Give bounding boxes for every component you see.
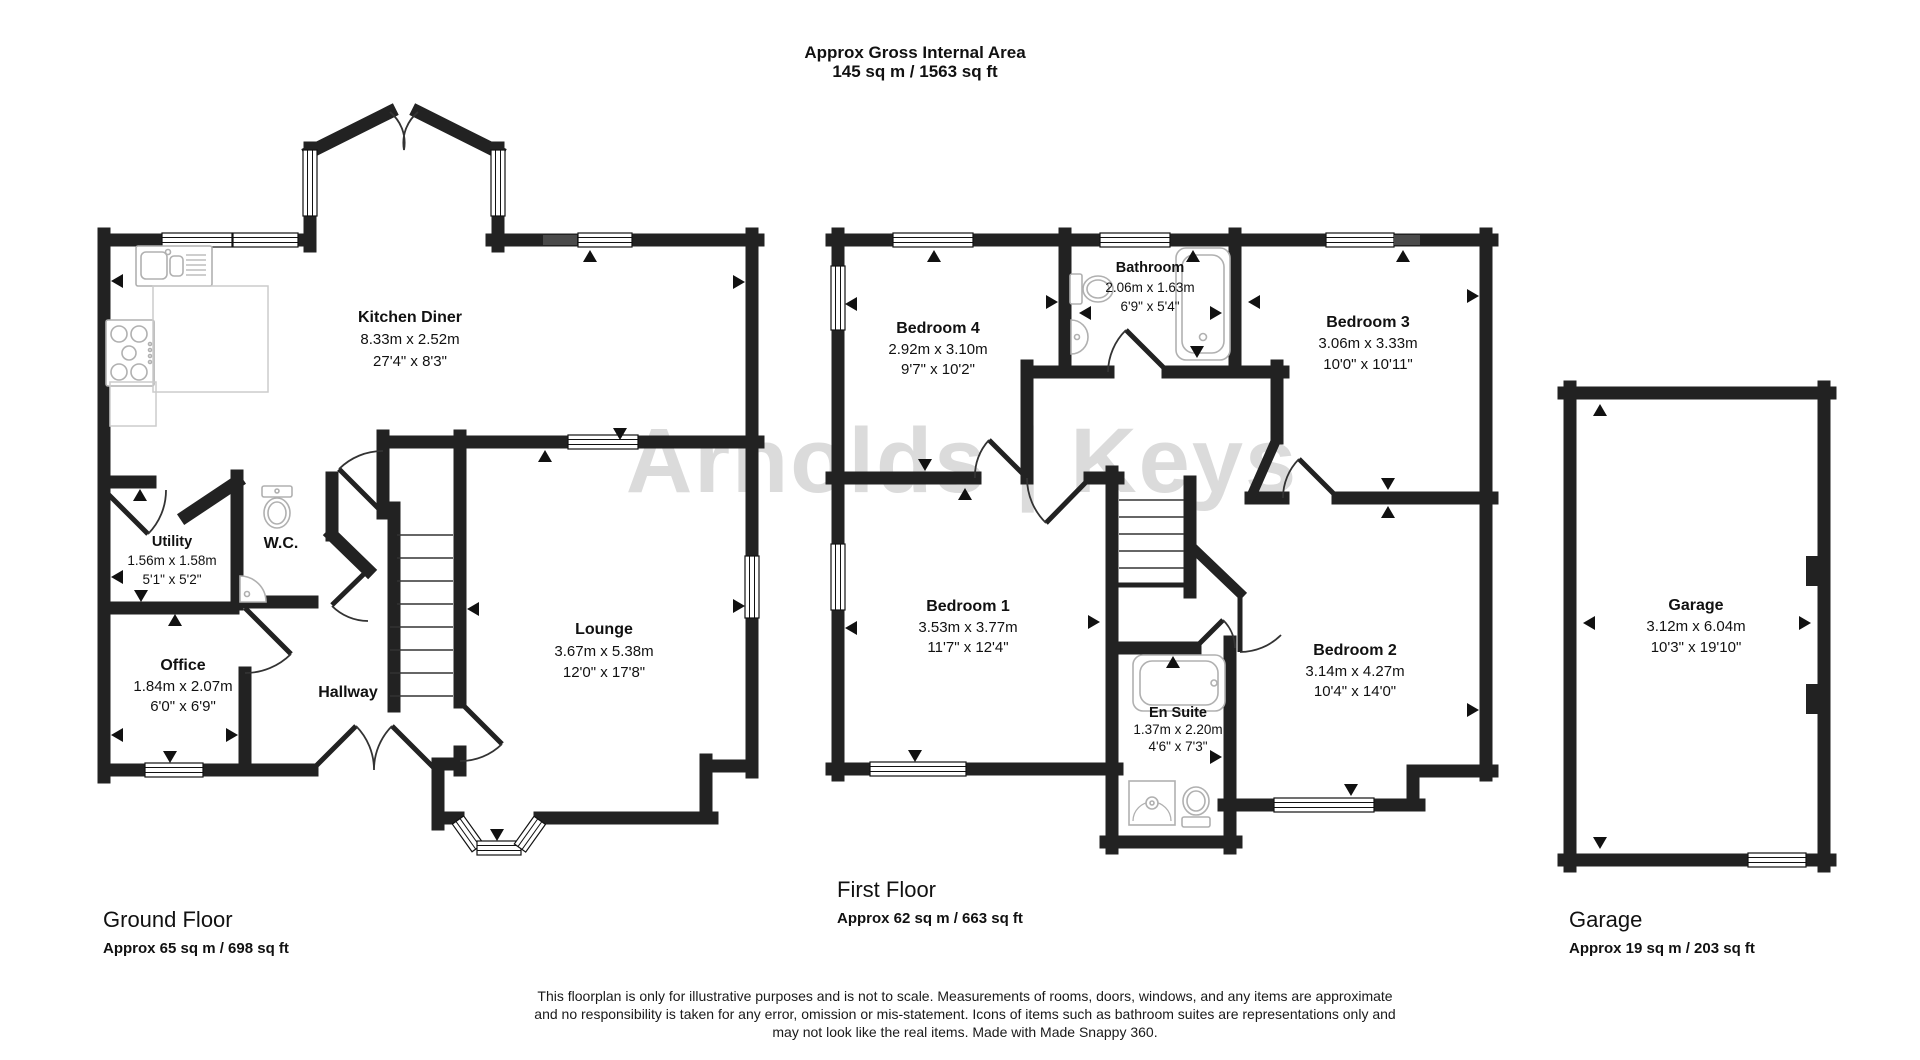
garage-plan: Garage 3.12m x 6.04m 10'3" x 19'10": [1564, 387, 1830, 867]
office-label: Office 1.84m x 2.07m 6'0" x 6'9": [133, 657, 232, 715]
gross-internal-area-header: Approx Gross Internal Area 145 sq m / 15…: [804, 43, 1026, 81]
bedroom-1-metric: 3.53m x 3.77m: [918, 619, 1017, 636]
garage-title: Garage: [1569, 907, 1642, 932]
bedroom-3-label: Bedroom 3 3.06m x 3.33m 10'0" x 10'11": [1318, 314, 1417, 373]
bedroom-3-metric: 3.06m x 3.33m: [1318, 335, 1417, 352]
garage-area: Approx 19 sq m / 203 sq ft: [1569, 940, 1755, 957]
utility-label: Utility 1.56m x 1.58m 5'1" x 5'2": [127, 534, 216, 587]
garage-windows: [1748, 853, 1806, 867]
first-floor-plan: Bedroom 4 2.92m x 3.10m 9'7" x 10'2" Bat…: [831, 233, 1492, 848]
garage-footer: Garage Approx 19 sq m / 203 sq ft: [1569, 907, 1755, 957]
bedroom-4-imperial: 9'7" x 10'2": [901, 361, 975, 378]
ground-floor-footer: Ground Floor Approx 65 sq m / 698 sq ft: [103, 907, 289, 957]
hallway-name: Hallway: [318, 684, 378, 701]
bedroom-4-metric: 2.92m x 3.10m: [888, 341, 987, 358]
bedroom-3-imperial: 10'0" x 10'11": [1323, 356, 1413, 373]
bathroom-metric: 2.06m x 1.63m: [1105, 280, 1194, 295]
lounge-imperial: 12'0" x 17'8": [563, 664, 645, 681]
kitchen-diner-name: Kitchen Diner: [358, 309, 462, 326]
bedroom-2-metric: 3.14m x 4.27m: [1305, 663, 1404, 680]
wc-name: W.C.: [264, 535, 299, 552]
bedroom-3-name: Bedroom 3: [1326, 314, 1410, 331]
office-name: Office: [160, 657, 205, 674]
ground-floor-title: Ground Floor: [103, 907, 233, 932]
en-suite-label: En Suite 1.37m x 2.20m 4'6" x 7'3": [1133, 705, 1222, 754]
lounge-name: Lounge: [575, 621, 633, 638]
disclaimer-line2: and no responsibility is taken for any e…: [534, 1006, 1395, 1022]
ensuite-shower-icon: [1129, 781, 1175, 825]
floorplan-image: Approx Gross Internal Area 145 sq m / 15…: [0, 0, 1920, 1060]
bedroom-1-label: Bedroom 1 3.53m x 3.77m 11'7" x 12'4": [918, 598, 1017, 656]
ensuite-bath-icon: [1133, 655, 1225, 711]
kitchen-diner-metric: 8.33m x 2.52m: [360, 331, 459, 348]
office-imperial: 6'0" x 6'9": [150, 698, 216, 715]
first-floor-title: First Floor: [837, 877, 936, 902]
disclaimer-line1: This floorplan is only for illustrative …: [537, 988, 1392, 1004]
bathroom-name: Bathroom: [1116, 260, 1184, 276]
disclaimer-line3: may not look like the real items. Made w…: [772, 1024, 1157, 1040]
bedroom-4-label: Bedroom 4 2.92m x 3.10m 9'7" x 10'2": [888, 320, 987, 378]
wc-basin-icon: [240, 576, 266, 602]
utility-metric: 1.56m x 1.58m: [127, 553, 216, 568]
garage-name: Garage: [1668, 597, 1723, 614]
header-line2: 145 sq m / 1563 sq ft: [832, 62, 998, 81]
bedroom-4-name: Bedroom 4: [896, 320, 980, 337]
utility-name: Utility: [152, 534, 192, 550]
garage-label: Garage 3.12m x 6.04m 10'3" x 19'10": [1646, 597, 1745, 656]
bedroom-2-name: Bedroom 2: [1313, 642, 1397, 659]
disclaimer: This floorplan is only for illustrative …: [534, 988, 1395, 1040]
bedroom-2-imperial: 10'4" x 14'0": [1314, 683, 1396, 700]
lounge-metric: 3.67m x 5.38m: [554, 643, 653, 660]
lounge-label: Lounge 3.67m x 5.38m 12'0" x 17'8": [554, 621, 653, 681]
office-metric: 1.84m x 2.07m: [133, 678, 232, 695]
garage-imperial: 10'3" x 19'10": [1651, 639, 1742, 656]
bathroom-imperial: 6'9" x 5'4": [1120, 299, 1179, 314]
kitchen-diner-label: Kitchen Diner 8.33m x 2.52m 27'4" x 8'3": [358, 309, 462, 370]
first-floor-area: Approx 62 sq m / 663 sq ft: [837, 910, 1023, 927]
kitchen-sink-icon: [136, 246, 212, 286]
bedroom-1-imperial: 11'7" x 12'4": [927, 639, 1008, 656]
hob-icon: [106, 320, 154, 386]
en-suite-metric: 1.37m x 2.20m: [1133, 722, 1222, 737]
floorplan-page: Approx Gross Internal Area 145 sq m / 15…: [0, 0, 1920, 1060]
ensuite-toilet-icon: [1182, 787, 1210, 827]
bathroom-basin-icon: [1071, 320, 1088, 354]
bedroom-1-name: Bedroom 1: [926, 598, 1010, 615]
en-suite-name: En Suite: [1149, 705, 1207, 721]
ground-floor-area: Approx 65 sq m / 698 sq ft: [103, 940, 289, 957]
en-suite-imperial: 4'6" x 7'3": [1148, 739, 1207, 754]
garage-metric: 3.12m x 6.04m: [1646, 618, 1745, 635]
wc-toilet-icon: [262, 486, 292, 528]
first-floor-footer: First Floor Approx 62 sq m / 663 sq ft: [837, 877, 1023, 927]
utility-imperial: 5'1" x 5'2": [142, 572, 201, 587]
kitchen-diner-imperial: 27'4" x 8'3": [373, 353, 447, 370]
bedroom-2-label: Bedroom 2 3.14m x 4.27m 10'4" x 14'0": [1305, 642, 1404, 700]
header-line1: Approx Gross Internal Area: [804, 43, 1026, 62]
